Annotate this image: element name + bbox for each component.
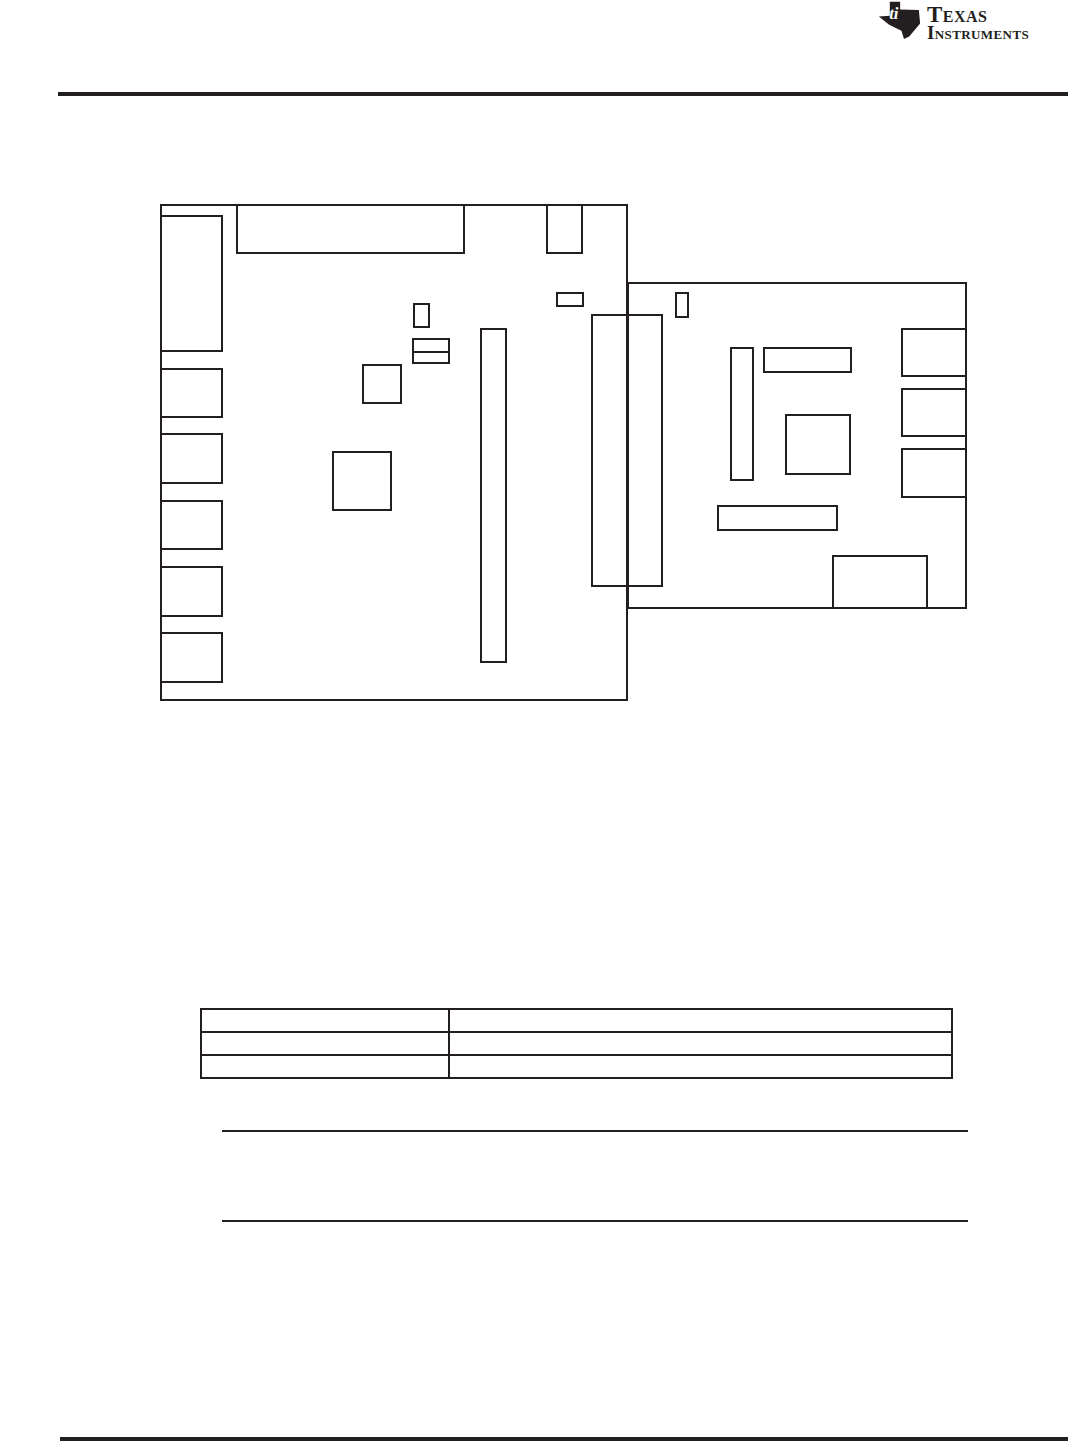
- board-1-left-connector-3: [160, 433, 223, 484]
- board-2-right-connector-3: [901, 448, 967, 498]
- board-2-wide-component: [717, 505, 838, 531]
- spec-table: [200, 1008, 953, 1079]
- board-1-stacked-component-bottom: [412, 351, 450, 364]
- table-row: [201, 1032, 952, 1055]
- board-2-square-component: [785, 414, 851, 475]
- table-cell: [449, 1009, 952, 1032]
- note-rule-top: [222, 1130, 968, 1132]
- table-cell: [201, 1055, 449, 1078]
- table-cell: [449, 1055, 952, 1078]
- board-placement-figure: [0, 0, 1068, 1445]
- table-row: [201, 1009, 952, 1032]
- board-1-top-connector: [236, 204, 465, 254]
- inter-board-connector: [591, 314, 663, 587]
- document-page: ti Texas Instruments: [0, 0, 1068, 1445]
- board-1-tall-slot: [480, 328, 507, 663]
- footer-rule: [60, 1437, 1068, 1441]
- board-1-left-connector-6: [160, 632, 223, 683]
- board-2-right-connector-1: [901, 328, 967, 377]
- board-1-top-right-component: [546, 204, 583, 254]
- board-1-small-flat-component: [556, 292, 584, 307]
- board-1-large-square-component: [332, 451, 392, 511]
- board-2-right-connector-2: [901, 388, 967, 437]
- board-1-small-square-component: [362, 364, 402, 404]
- table-cell: [201, 1009, 449, 1032]
- note-rule-bottom: [222, 1220, 968, 1222]
- table-cell: [449, 1032, 952, 1055]
- board-1-left-connector-5: [160, 566, 223, 617]
- table-cell: [201, 1032, 449, 1055]
- board-1-left-connector-4: [160, 500, 223, 550]
- board-1-left-connector-tall: [160, 215, 223, 352]
- board-2-bottom-component: [832, 555, 928, 609]
- table-row: [201, 1055, 952, 1078]
- board-1-outline: [160, 204, 628, 701]
- board-2-horizontal-component: [763, 347, 852, 373]
- board-1-small-vertical-component: [413, 303, 430, 328]
- board-2-tall-component: [730, 347, 754, 481]
- board-2-small-vertical-component: [675, 292, 689, 318]
- board-1-left-connector-2: [160, 368, 223, 418]
